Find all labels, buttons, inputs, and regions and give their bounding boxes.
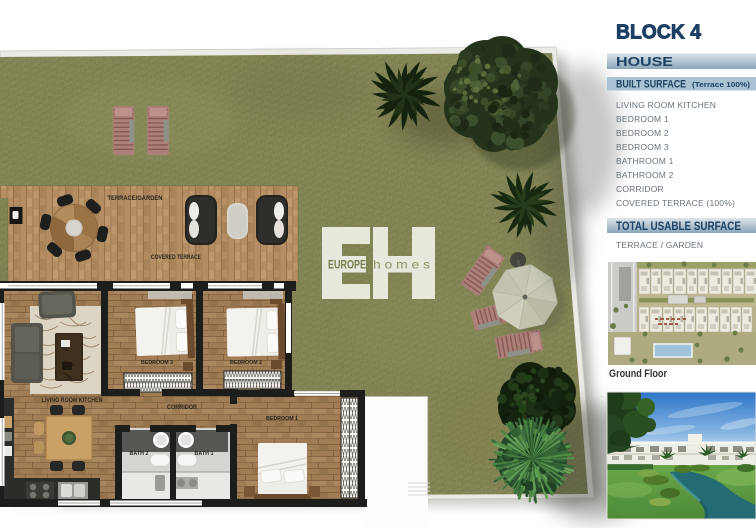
svg-text:BLOCK 4: BLOCK 4 bbox=[616, 22, 702, 44]
svg-text:CORRIDOR: CORRIDOR bbox=[616, 184, 664, 194]
svg-text:LIVING ROOM KITCHEN: LIVING ROOM KITCHEN bbox=[616, 100, 716, 110]
svg-text:BATHROOM 2: BATHROOM 2 bbox=[616, 170, 674, 180]
svg-text:BATHROOM 1: BATHROOM 1 bbox=[616, 156, 674, 166]
svg-text:TOTAL USABLE SURFACE: TOTAL USABLE SURFACE bbox=[616, 219, 741, 233]
svg-text:(Terrace 100%): (Terrace 100%) bbox=[692, 80, 751, 89]
svg-text:TERRACE/GARDEN: TERRACE/GARDEN bbox=[108, 196, 163, 202]
svg-text:COVERED TERRACE (100%): COVERED TERRACE (100%) bbox=[616, 198, 735, 208]
svg-text:BATH 1: BATH 1 bbox=[195, 451, 214, 457]
svg-text:BEDROOM 1: BEDROOM 1 bbox=[266, 416, 298, 422]
svg-text:BATH 2: BATH 2 bbox=[130, 451, 149, 457]
svg-text:BEDROOM 2: BEDROOM 2 bbox=[230, 360, 262, 366]
svg-text:BEDROOM 1: BEDROOM 1 bbox=[616, 114, 669, 124]
svg-text:COVERED TERRACE: COVERED TERRACE bbox=[151, 255, 201, 261]
svg-text:CORRIDOR: CORRIDOR bbox=[167, 405, 198, 411]
svg-text:HOUSE: HOUSE bbox=[616, 54, 673, 69]
svg-text:TERRACE / GARDEN: TERRACE / GARDEN bbox=[616, 240, 703, 250]
svg-text:h o m e s: h o m e s bbox=[373, 258, 430, 272]
svg-text:BEDROOM 3: BEDROOM 3 bbox=[616, 142, 669, 152]
svg-text:BEDROOM 3: BEDROOM 3 bbox=[141, 360, 173, 366]
svg-text:Ground Floor: Ground Floor bbox=[609, 368, 668, 380]
svg-text:LIVING ROOM KITCHEN: LIVING ROOM KITCHEN bbox=[42, 398, 103, 404]
svg-text:BEDROOM 2: BEDROOM 2 bbox=[616, 128, 669, 138]
svg-text:EUROPE: EUROPE bbox=[328, 258, 366, 272]
svg-text:BUILT SURFACE: BUILT SURFACE bbox=[616, 79, 686, 91]
